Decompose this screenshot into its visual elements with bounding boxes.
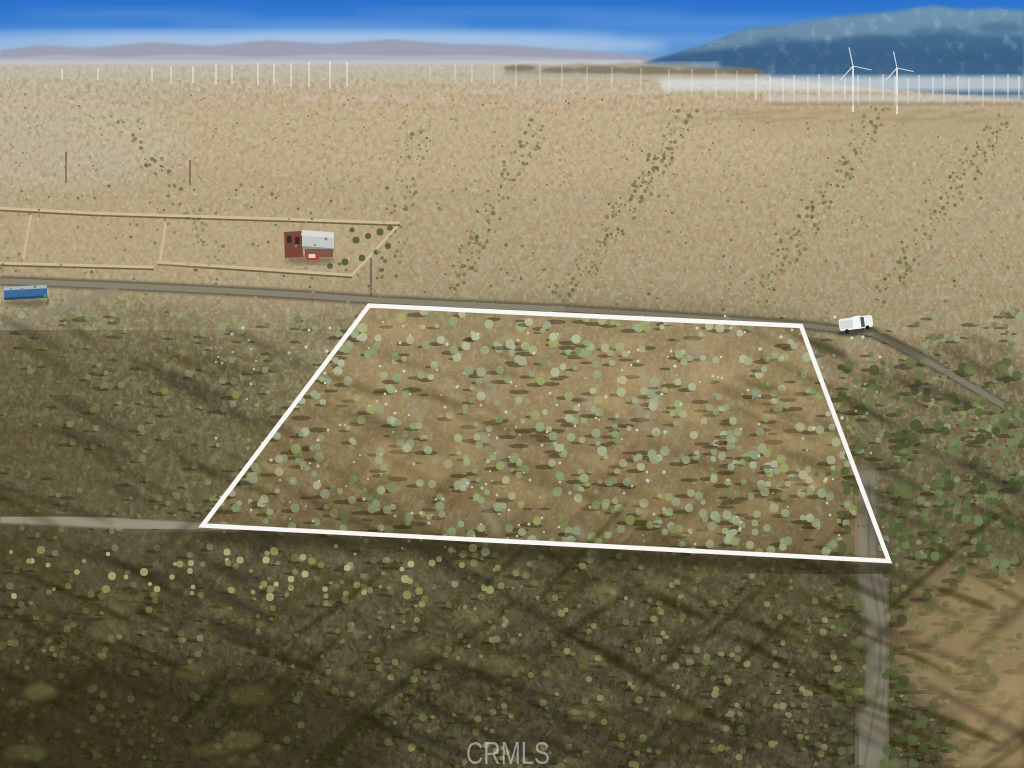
- svg-text:CRMLS: CRMLS: [466, 736, 550, 768]
